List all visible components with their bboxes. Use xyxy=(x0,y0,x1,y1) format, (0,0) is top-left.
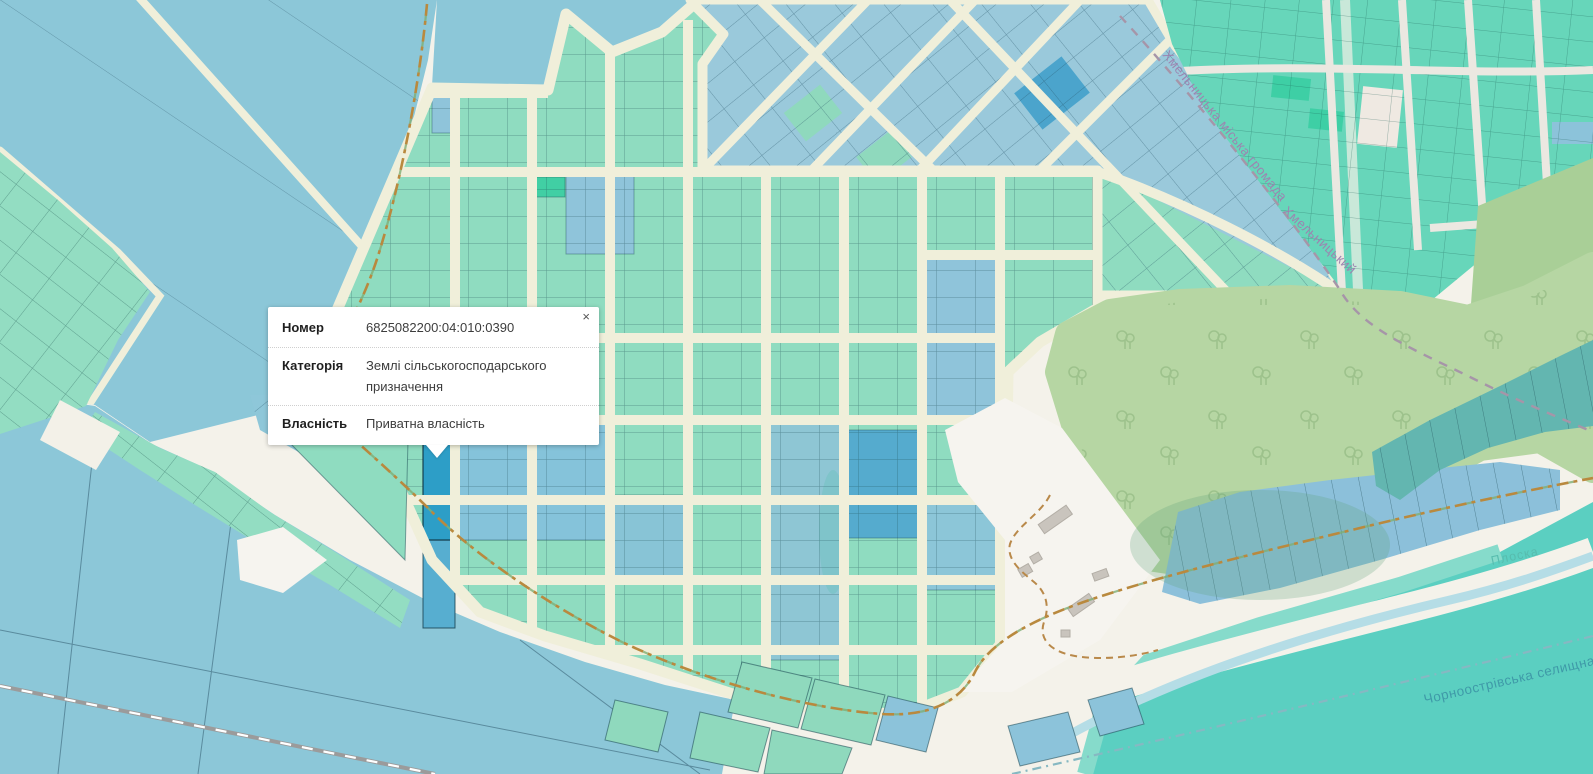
popup-callout-arrow xyxy=(426,445,448,458)
popup-value: Землі сільськогосподарського призначення xyxy=(366,356,585,398)
popup-value: Приватна власність xyxy=(366,414,485,435)
map-layers: Хмельницька міська громада Хмельницький … xyxy=(0,0,1593,774)
popup-row-ownership: Власність Приватна власність xyxy=(268,405,599,443)
popup-value: 6825082200:04:010:0390 xyxy=(366,318,514,339)
cadastral-map-canvas[interactable]: Хмельницька міська громада Хмельницький … xyxy=(0,0,1593,774)
parcel-info-popup: × Номер 6825082200:04:010:0390 Категорія… xyxy=(268,307,599,445)
popup-row-number: Номер 6825082200:04:010:0390 xyxy=(268,310,599,347)
popup-label: Категорія xyxy=(282,356,366,398)
popup-label: Номер xyxy=(282,318,366,339)
popup-label: Власність xyxy=(282,414,366,435)
popup-row-category: Категорія Землі сільськогосподарського п… xyxy=(268,347,599,406)
popup-close-button[interactable]: × xyxy=(582,310,590,323)
